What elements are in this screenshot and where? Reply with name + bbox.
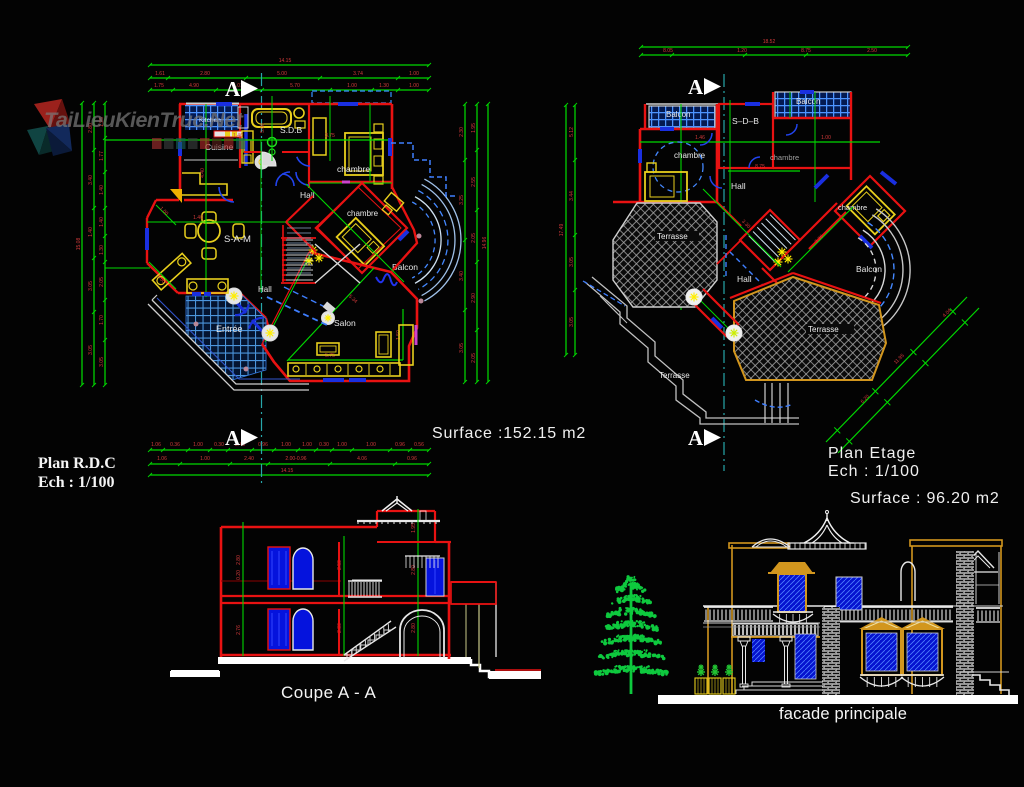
svg-text:chambre: chambre [347, 209, 379, 218]
svg-text:TaiLieuKienTruc.Net: TaiLieuKienTruc.Net [44, 108, 244, 132]
svg-text:1.20: 1.20 [737, 48, 747, 54]
svg-text:2.05: 2.05 [99, 277, 105, 287]
svg-text:Terrasse: Terrasse [808, 325, 839, 334]
svg-text:1.00: 1.00 [409, 71, 419, 77]
svg-text:1.77: 1.77 [99, 151, 105, 161]
svg-text:1.00: 1.00 [347, 83, 357, 89]
svg-text:2.40: 2.40 [244, 456, 254, 462]
svg-text:2.80: 2.80 [411, 623, 417, 633]
svg-text:Salon: Salon [334, 318, 356, 328]
svg-text:4.90: 4.90 [189, 83, 199, 89]
svg-text:2.30: 2.30 [459, 127, 465, 137]
svg-text:2.05: 2.05 [471, 233, 477, 243]
svg-text:0.56: 0.56 [414, 442, 424, 448]
svg-text:chambre: chambre [674, 151, 706, 160]
svg-text:8.75: 8.75 [801, 48, 811, 54]
svg-text:facade principale: facade principale [779, 705, 907, 723]
svg-text:A: A [225, 77, 241, 101]
svg-text:1.40: 1.40 [99, 185, 105, 195]
svg-text:1.70: 1.70 [99, 315, 105, 325]
svg-text:1.06: 1.06 [151, 442, 161, 448]
svg-text:A: A [688, 426, 704, 450]
svg-text:2.55: 2.55 [471, 177, 477, 187]
svg-text:2.90: 2.90 [471, 293, 477, 303]
svg-text:1.00: 1.00 [366, 442, 376, 448]
svg-text:5.06: 5.06 [260, 123, 266, 133]
svg-text:0.30: 0.30 [319, 442, 329, 448]
svg-text:3.25: 3.25 [459, 195, 465, 205]
svg-text:3.75: 3.75 [325, 133, 335, 139]
svg-text:14.15: 14.15 [279, 58, 292, 64]
svg-text:1.95: 1.95 [471, 123, 477, 133]
svg-text:18.52: 18.52 [763, 39, 776, 45]
svg-text:Hall: Hall [258, 285, 272, 294]
svg-text:0.96: 0.96 [258, 442, 268, 448]
svg-text:Ech : 1/100: Ech : 1/100 [38, 474, 114, 491]
svg-text:8.05: 8.05 [663, 48, 673, 54]
svg-text:Hall: Hall [737, 274, 752, 284]
svg-text:S–D–B: S–D–B [732, 116, 759, 126]
svg-text:1.40: 1.40 [99, 217, 105, 227]
svg-text:2.80: 2.80 [236, 555, 242, 565]
svg-text:2.05: 2.05 [471, 353, 477, 363]
svg-text:3.05: 3.05 [569, 257, 575, 267]
svg-text:1.06: 1.06 [157, 456, 167, 462]
svg-text:S-A-M: S-A-M [224, 234, 251, 245]
svg-text:Terrasse: Terrasse [659, 371, 690, 380]
svg-text:3.05: 3.05 [88, 345, 94, 355]
svg-text:Balcon: Balcon [796, 97, 820, 106]
svg-text:0.96: 0.96 [407, 456, 417, 462]
svg-text:A: A [688, 75, 704, 99]
svg-text:5.70: 5.70 [290, 83, 300, 89]
svg-text:5.75: 5.75 [325, 353, 335, 359]
svg-text:Entrée: Entrée [216, 324, 243, 334]
svg-text:Surface : 96.20 m2: Surface : 96.20 m2 [850, 490, 1000, 507]
svg-text:1.00: 1.00 [821, 135, 831, 141]
svg-text:8.75: 8.75 [755, 164, 765, 170]
svg-text:14.15: 14.15 [281, 468, 294, 474]
svg-text:S.D.B: S.D.B [280, 125, 303, 135]
svg-text:0.36: 0.36 [170, 442, 180, 448]
svg-text:1.95: 1.95 [411, 523, 417, 533]
svg-text:3.74: 3.74 [353, 71, 363, 77]
svg-text:3.40: 3.40 [459, 271, 465, 281]
svg-text:Balcon: Balcon [666, 110, 690, 119]
svg-text:2.50: 2.50 [867, 48, 877, 54]
svg-text:Ech : 1/100: Ech : 1/100 [828, 463, 920, 480]
svg-text:Plan R.D.C: Plan R.D.C [38, 455, 116, 472]
svg-text:1.75: 1.75 [154, 83, 164, 89]
svg-text:5.12: 5.12 [569, 127, 575, 137]
svg-text:1.40: 1.40 [88, 227, 94, 237]
svg-text:14.96: 14.96 [482, 237, 488, 250]
svg-text:4.06: 4.06 [357, 456, 367, 462]
svg-text:1.00: 1.00 [337, 442, 347, 448]
svg-text:1.30: 1.30 [99, 245, 105, 255]
svg-text:0.96: 0.96 [395, 442, 405, 448]
svg-text:1.46: 1.46 [695, 135, 705, 141]
svg-text:2.00-0.96: 2.00-0.96 [285, 456, 306, 462]
svg-text:3.40: 3.40 [88, 175, 94, 185]
svg-text:Hall: Hall [731, 181, 746, 191]
svg-text:chambre: chambre [337, 164, 370, 174]
svg-text:Hall: Hall [300, 190, 315, 200]
svg-text:2.80: 2.80 [200, 71, 210, 77]
svg-text:0.20: 0.20 [236, 570, 242, 580]
svg-text:15.08: 15.08 [76, 238, 82, 251]
svg-text:3.05: 3.05 [459, 343, 465, 353]
svg-text:5.00: 5.00 [277, 71, 287, 77]
svg-text:chambre: chambre [770, 153, 799, 162]
svg-text:2.76: 2.76 [236, 625, 242, 635]
svg-text:1.00: 1.00 [409, 83, 419, 89]
svg-text:17.49: 17.49 [559, 224, 565, 237]
svg-text:1.30: 1.30 [379, 83, 389, 89]
svg-text:1.00: 1.00 [281, 442, 291, 448]
svg-text:Surface :152.15 m2: Surface :152.15 m2 [432, 425, 586, 442]
svg-text:1.00: 1.00 [193, 442, 203, 448]
svg-text:1.61: 1.61 [155, 71, 165, 77]
svg-text:0.30: 0.30 [214, 442, 224, 448]
svg-text:Balcon: Balcon [856, 264, 882, 274]
svg-text:A: A [225, 426, 241, 450]
svg-text:1.00: 1.00 [302, 442, 312, 448]
svg-text:3.05: 3.05 [88, 281, 94, 291]
svg-text:1.00: 1.00 [200, 456, 210, 462]
svg-text:Coupe A - A: Coupe A - A [281, 683, 376, 702]
svg-text:4.40: 4.40 [200, 168, 206, 178]
svg-text:3.05: 3.05 [569, 317, 575, 327]
svg-text:Terrasse: Terrasse [657, 232, 688, 241]
svg-text:3.44: 3.44 [569, 191, 575, 201]
svg-text:3.05: 3.05 [99, 357, 105, 367]
svg-text:Plan Etage: Plan Etage [828, 445, 916, 462]
svg-text:1.40: 1.40 [193, 215, 203, 221]
